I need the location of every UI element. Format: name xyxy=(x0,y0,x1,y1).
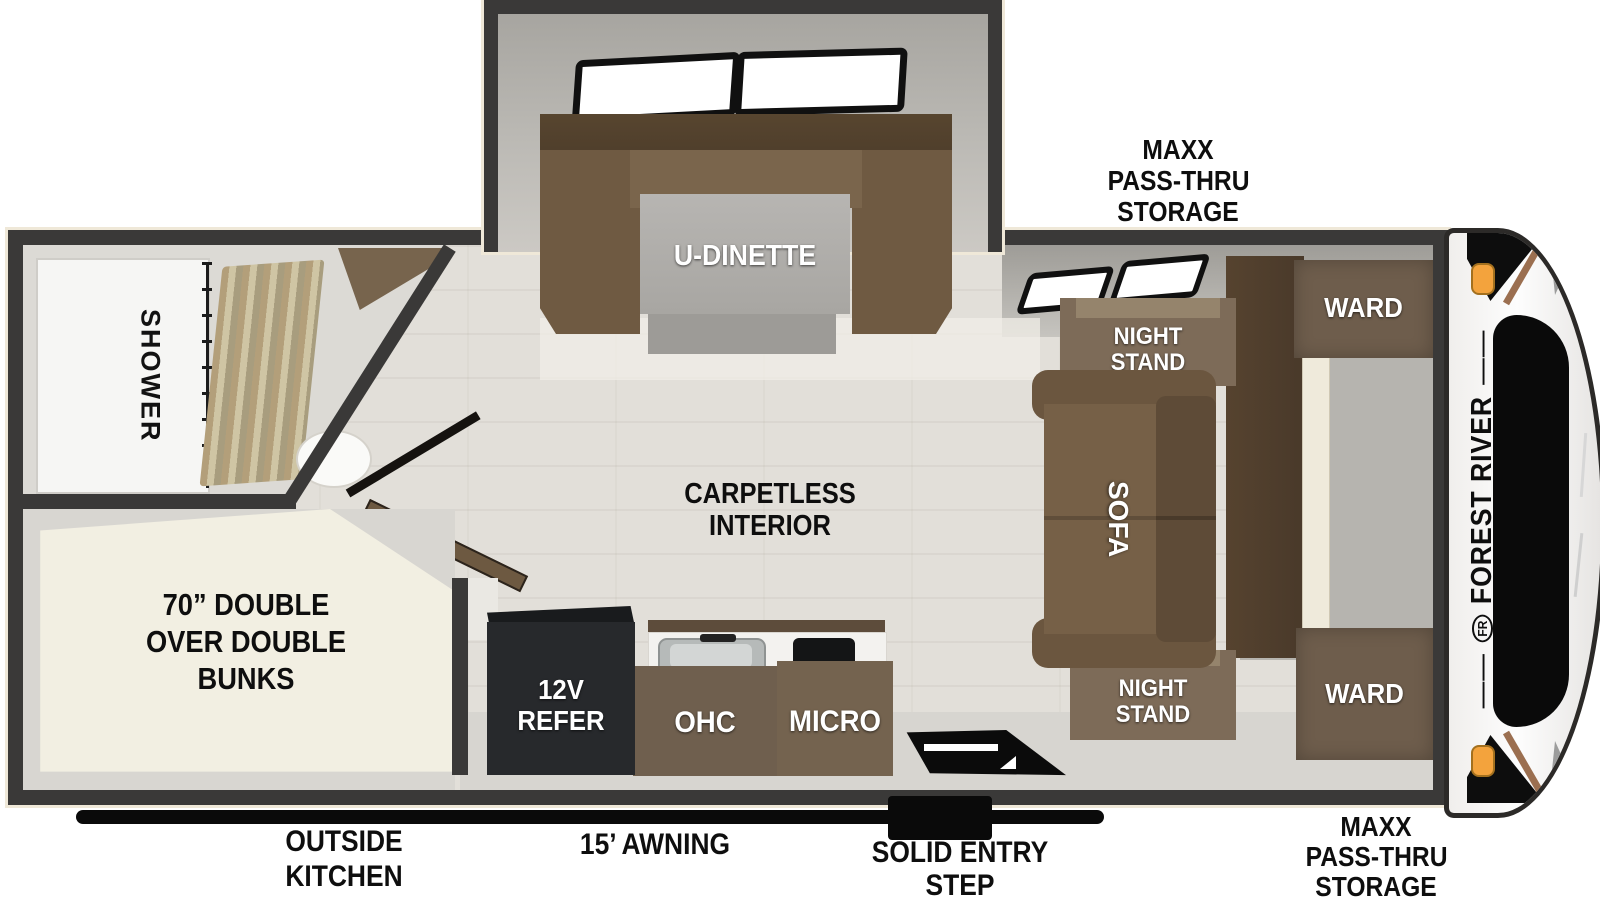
cap-chevron-2 xyxy=(1580,433,1587,497)
cap-marker-light-bottom xyxy=(1471,745,1495,777)
awning-label: 15’ AWNING xyxy=(567,828,743,862)
brand-dash-left: —— xyxy=(1466,653,1499,708)
dinette-arm-left xyxy=(540,150,640,334)
entry-door-threshold xyxy=(924,744,998,751)
shower-pan xyxy=(36,258,210,494)
night-stand-top-label: NIGHT STAND xyxy=(1067,324,1229,376)
wardrobe-bottom: WARD xyxy=(1296,628,1433,760)
shower-label: SHOWER xyxy=(128,296,172,456)
slideout-window-pane-right xyxy=(734,48,908,117)
cap-marker-light-top xyxy=(1471,263,1495,295)
refer-label: 12V REFER xyxy=(493,674,629,736)
brand-dash-right: —— xyxy=(1466,330,1499,385)
night-stand-top-face xyxy=(1076,298,1220,318)
microwave-cabinet: MICRO xyxy=(777,661,893,776)
sink-basin xyxy=(670,644,752,668)
murphy-bed-base xyxy=(1226,256,1304,658)
cap-accent-top-gray xyxy=(1543,233,1583,295)
dinette-table-leg xyxy=(648,310,836,354)
outside-kitchen-label: OUTSIDE KITCHEN xyxy=(265,824,423,894)
refrigerator: 12V REFER xyxy=(487,622,635,775)
bunks-label: 70” DOUBLE OVER DOUBLE BUNKS xyxy=(114,586,378,697)
dinette-arm-right xyxy=(852,150,952,334)
cap-accent-bottom-gray xyxy=(1543,741,1583,803)
brand-monogram: FR xyxy=(1472,615,1493,642)
murphy-bed-mattress-edge xyxy=(1302,350,1330,644)
ohc-cabinet: OHC xyxy=(633,666,777,776)
u-dinette-label: U-DINETTE xyxy=(648,240,841,273)
ward-bottom-label: WARD xyxy=(1301,678,1427,710)
storage-label-bottom: MAXX PASS-THRU STORAGE xyxy=(1306,812,1447,897)
bedroom-window-pane-right xyxy=(1108,254,1211,305)
bunk-room-right-wall xyxy=(452,578,468,775)
wardrobe-top: WARD xyxy=(1294,260,1433,358)
night-stand-bottom-label: NIGHT STAND xyxy=(1077,676,1230,728)
micro-label: MICRO xyxy=(772,705,897,739)
storage-label-top: MAXX PASS-THRU STORAGE xyxy=(1108,134,1249,227)
entry-step-label: SOLID ENTRY STEP xyxy=(868,836,1053,897)
cap-windshield xyxy=(1493,315,1569,727)
sofa-back-seam xyxy=(1156,516,1216,520)
faucet xyxy=(700,634,736,642)
ward-top-label: WARD xyxy=(1300,292,1428,324)
awning-bar xyxy=(76,810,1104,824)
bathroom-bottom-wall xyxy=(8,494,296,510)
ohc-label: OHC xyxy=(639,706,771,740)
brand-name: FOREST RIVER xyxy=(1466,396,1499,604)
sofa-label: SOFA xyxy=(1098,444,1138,594)
brand-logo: —— FR FOREST RIVER —— xyxy=(1463,326,1501,712)
carpetless-label: CARPETLESS INTERIOR xyxy=(656,478,885,542)
dinette-table: U-DINETTE xyxy=(640,194,850,314)
rv-floorplan-diagram: U-DINETTE SHOWER 70” DOUBLE OVER DOUBLE … xyxy=(0,0,1600,897)
cap-chevron-1 xyxy=(1574,533,1584,597)
